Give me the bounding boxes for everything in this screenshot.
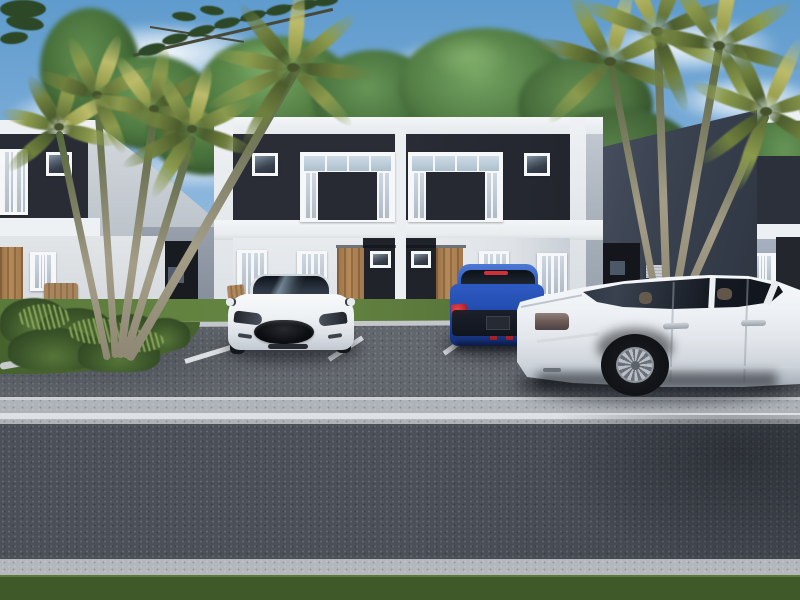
- side-light-glass: [485, 173, 499, 218]
- shrub-highlight: [18, 304, 70, 330]
- stop-lamp: [484, 271, 508, 275]
- window-inset-panel: [426, 172, 485, 220]
- white-tesla: [226, 272, 356, 356]
- corner-window-assembly: [408, 152, 503, 222]
- side-light-glass: [412, 173, 426, 218]
- duplex-center-divider: [395, 128, 406, 306]
- door-handle: [741, 320, 766, 326]
- side-mirror: [345, 298, 355, 306]
- license-plate: [486, 316, 510, 330]
- sedan-cast-shadow: [545, 415, 800, 565]
- window: [252, 153, 278, 176]
- architectural-render-scene: [0, 0, 800, 600]
- door-surround-panel: [363, 238, 395, 306]
- duplex-floor-band: [214, 220, 603, 240]
- window: [370, 251, 391, 268]
- dark-glass: [373, 254, 388, 265]
- headrest: [639, 292, 652, 304]
- front-lawn: [0, 575, 800, 600]
- window: [524, 153, 550, 176]
- dark-glass: [414, 254, 428, 265]
- lower-intake: [268, 344, 308, 349]
- side-light-glass: [304, 173, 318, 218]
- corner-window-assembly: [300, 152, 395, 222]
- wheel-hub: [631, 361, 640, 370]
- dark-glass: [527, 156, 547, 173]
- reflector: [506, 336, 513, 340]
- left-building-white-band: [0, 218, 100, 238]
- entry-door: [0, 247, 23, 303]
- side-mirror: [226, 298, 236, 306]
- window: [411, 251, 431, 268]
- side-light-glass: [377, 173, 391, 218]
- white-luxury-sedan: [513, 266, 800, 400]
- door-handle: [663, 323, 689, 330]
- window-inset-panel: [318, 172, 377, 220]
- tail-light: [535, 313, 569, 330]
- exhaust-tip: [543, 368, 561, 372]
- background-tree-highlight: [428, 34, 510, 80]
- dark-glass: [255, 156, 275, 173]
- door-surround-panel: [406, 238, 436, 306]
- reflector: [490, 336, 497, 340]
- headrest: [717, 288, 732, 300]
- front-grille: [254, 320, 314, 344]
